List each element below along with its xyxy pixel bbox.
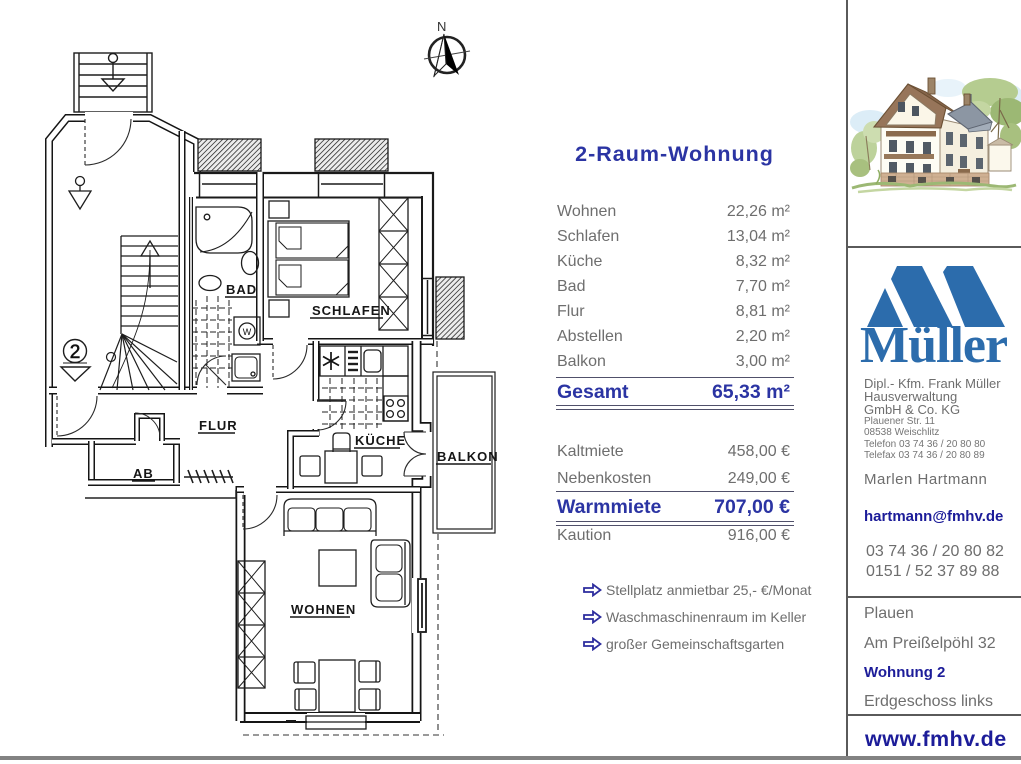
svg-text:BALKON: BALKON (437, 449, 499, 464)
svg-text:Müller: Müller (860, 317, 1007, 370)
svg-text:BAD: BAD (226, 282, 257, 297)
svg-text:WOHNEN: WOHNEN (291, 602, 356, 617)
svg-text:FLUR: FLUR (199, 418, 238, 433)
svg-text:SCHLAFEN: SCHLAFEN (312, 303, 391, 318)
svg-text:KÜCHE: KÜCHE (355, 433, 406, 448)
svg-text:2: 2 (70, 342, 81, 363)
svg-text:W: W (243, 327, 252, 337)
svg-text:N: N (437, 19, 446, 34)
svg-text:AB: AB (133, 466, 154, 481)
